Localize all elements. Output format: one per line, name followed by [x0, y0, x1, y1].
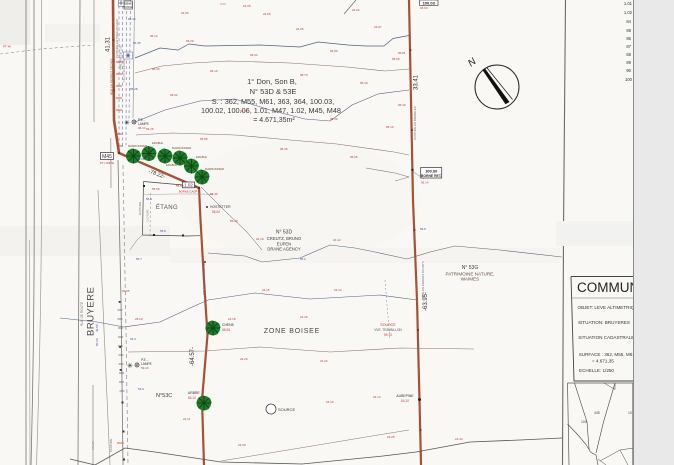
svg-text:58.05: 58.05 — [222, 328, 230, 332]
svg-text:ÉTANG: ÉTANG — [156, 204, 178, 211]
svg-text:24.05: 24.05 — [387, 435, 395, 439]
svg-text:N° 53D & 53E: N° 53D & 53E — [250, 87, 297, 96]
svg-text:AUBEPINE: AUBEPINE — [396, 394, 414, 398]
svg-text:24.43: 24.43 — [455, 437, 463, 441]
svg-text:96.28: 96.28 — [130, 87, 138, 91]
svg-text:24.05: 24.05 — [296, 27, 304, 31]
svg-text:✳: ✳ — [127, 362, 133, 370]
svg-text:ZONE BOISEE: ZONE BOISEE — [264, 328, 320, 335]
svg-text:24.09: 24.09 — [238, 443, 246, 447]
svg-text:96.14: 96.14 — [138, 126, 146, 130]
svg-text:95.60: 95.60 — [392, 57, 400, 61]
svg-text:96.12: 96.12 — [150, 34, 158, 38]
svg-text:96.40: 96.40 — [128, 17, 136, 21]
svg-text:56.00: 56.00 — [212, 210, 220, 214]
svg-text:29.05: 29.05 — [122, 289, 130, 293]
svg-text:96.25: 96.25 — [146, 127, 154, 131]
svg-text:55.7: 55.7 — [136, 257, 142, 261]
svg-text:55.9: 55.9 — [146, 197, 152, 201]
svg-text:PT 46: PT 46 — [3, 45, 11, 49]
svg-text:MARRONNIER: MARRONNIER — [172, 146, 191, 150]
svg-text:24.10: 24.10 — [256, 237, 264, 241]
svg-text:88: 88 — [626, 28, 631, 33]
svg-text:TALUS ENHERBE: TALUS ENHERBE — [122, 59, 126, 82]
svg-text:ERABLE: ERABLE — [166, 163, 177, 167]
svg-text:1° Don, Son B,: 1° Don, Son B, — [247, 77, 297, 86]
svg-text:CLOTURE: CLOTURE — [109, 439, 113, 452]
svg-text:24.06: 24.06 — [263, 12, 271, 16]
svg-text:DRANE AGENCY: DRANE AGENCY — [267, 247, 300, 252]
svg-text:95.05: 95.05 — [350, 155, 358, 159]
svg-text:VIEUX MUR DE CLOTURE: VIEUX MUR DE CLOTURE — [202, 261, 206, 295]
svg-text:438: 438 — [594, 411, 600, 415]
svg-text:VVE. TRAVAILLON: VVE. TRAVAILLON — [374, 328, 402, 332]
svg-text:95.90: 95.90 — [240, 109, 248, 113]
svg-text:24.10: 24.10 — [326, 400, 334, 404]
svg-text:= 4.671,35: = 4.671,35 — [592, 359, 614, 364]
svg-text:24.04: 24.04 — [352, 8, 360, 12]
svg-text:54.10: 54.10 — [401, 399, 409, 403]
svg-text:50.60: 50.60 — [95, 338, 99, 346]
svg-text:24.18: 24.18 — [228, 317, 236, 321]
svg-text:24.11: 24.11 — [183, 417, 191, 421]
svg-text:CREUTZ, BRUNO: CREUTZ, BRUNO — [267, 236, 302, 241]
svg-text:96.02: 96.02 — [170, 93, 178, 97]
svg-text:N° 53G: N° 53G — [462, 265, 479, 271]
svg-text:55.30: 55.30 — [230, 219, 238, 223]
svg-text:24.12: 24.12 — [333, 238, 341, 242]
svg-text:55.8: 55.8 — [160, 229, 166, 233]
svg-text:= 4.671,35m²: = 4.671,35m² — [253, 117, 295, 124]
svg-text:55.50: 55.50 — [176, 184, 184, 188]
svg-text:100: 100 — [625, 77, 633, 82]
svg-text:96.04: 96.04 — [250, 53, 258, 57]
svg-text:95.45: 95.45 — [280, 147, 288, 151]
svg-text:68: 68 — [626, 52, 631, 57]
svg-text:ECHELLE: 1/250: ECHELLE: 1/250 — [579, 368, 614, 373]
svg-text:MARRONNIER: MARRONNIER — [205, 167, 224, 171]
svg-text:89: 89 — [626, 60, 631, 65]
svg-text:1.02: 1.02 — [624, 10, 633, 15]
svg-text:SOURCE: SOURCE — [278, 407, 295, 412]
svg-text:95.70: 95.70 — [300, 73, 308, 77]
svg-text:49.50: 49.50 — [95, 324, 99, 332]
svg-text:24.20: 24.20 — [240, 357, 248, 361]
svg-text:53.4: 53.4 — [130, 337, 136, 341]
svg-text:MARRONNIER: MARRONNIER — [128, 144, 147, 148]
svg-text:M48: M48 — [220, 2, 226, 6]
svg-text:96.00: 96.00 — [137, 157, 145, 161]
svg-text:29.10: 29.10 — [135, 317, 143, 321]
svg-text:CLOTURE EN BARBELES: CLOTURE EN BARBELES — [413, 106, 417, 140]
svg-text:N°53C: N°53C — [156, 393, 172, 399]
svg-text:96.30: 96.30 — [152, 67, 160, 71]
svg-text:BORNE RET.: BORNE RET. — [421, 174, 442, 178]
svg-text:52.9: 52.9 — [138, 387, 144, 391]
svg-text:95.80: 95.80 — [330, 49, 338, 53]
svg-text:SURFACE : 362, M55, M61: SURFACE : 362, M55, M61 — [579, 352, 636, 357]
svg-text:SITUATION CADASTRALE: SITUATION CADASTRALE — [578, 335, 634, 340]
svg-text:95.32: 95.32 — [398, 103, 406, 107]
svg-text:95.60: 95.60 — [420, 6, 428, 10]
svg-text:24.22: 24.22 — [320, 359, 328, 363]
svg-text:24.15: 24.15 — [262, 288, 270, 292]
svg-text:CLOTURE: CLOTURE — [146, 209, 150, 222]
svg-text:✳: ✳ — [124, 119, 130, 127]
svg-text:10: 10 — [628, 411, 632, 415]
svg-text:100.06: 100.06 — [425, 168, 438, 173]
svg-text:BORNE CADP: BORNE CADP — [179, 190, 198, 194]
svg-text:24.13: 24.13 — [373, 395, 381, 399]
svg-text:CLOTURE: CLOTURE — [138, 202, 142, 215]
svg-text:56.8: 56.8 — [420, 227, 426, 231]
svg-text:S. : 362, M55, M61, 363, 364,: S. : 362, M55, M61, 363, 364, 100.03, — [212, 97, 335, 106]
svg-text:24.08: 24.08 — [243, 4, 251, 8]
svg-text:SITUATION: BRUYERES: SITUATION: BRUYERES — [578, 320, 630, 325]
svg-text:33.41: 33.41 — [414, 74, 420, 90]
svg-text:ERABLE: ERABLE — [196, 155, 207, 159]
svg-text:90: 90 — [626, 68, 631, 73]
svg-text:59.10: 59.10 — [384, 333, 392, 337]
svg-text:24.16: 24.16 — [300, 315, 308, 319]
svg-text:100.02, 100.06, 1.01, M47, 1.0: 100.02, 100.06, 1.01, M47, 1.02, M45, M4… — [201, 106, 341, 115]
svg-text:ARBRE: ARBRE — [188, 391, 200, 395]
svg-text:55.40: 55.40 — [210, 192, 218, 196]
svg-text:87: 87 — [626, 44, 631, 49]
svg-text:CHENE: CHENE — [222, 323, 235, 327]
svg-text:24.05: 24.05 — [181, 11, 189, 15]
svg-text:-64.57-: -64.57- — [190, 347, 196, 366]
svg-text:95.14: 95.14 — [421, 181, 429, 185]
svg-text:MUR EN PIERRES DU PAYS: MUR EN PIERRES DU PAYS — [421, 261, 425, 298]
svg-text:55.60: 55.60 — [152, 187, 160, 191]
svg-text:M45: M45 — [102, 154, 112, 160]
svg-text:95.85: 95.85 — [200, 137, 208, 141]
svg-text:100: 100 — [581, 420, 587, 424]
svg-text:54.10: 54.10 — [188, 396, 196, 400]
svg-text:WAIMES: WAIMES — [461, 277, 479, 282]
svg-text:96.35: 96.35 — [133, 41, 141, 45]
svg-text:24.14: 24.14 — [334, 288, 342, 292]
svg-text:SOURCE: SOURCE — [380, 323, 396, 327]
svg-text:59.20: 59.20 — [141, 366, 149, 370]
svg-text:96.20: 96.20 — [186, 39, 194, 43]
svg-text:95.10: 95.10 — [386, 125, 394, 129]
svg-text:1.02: 1.02 — [184, 183, 193, 188]
svg-text:86: 86 — [626, 36, 631, 41]
svg-text:BORNE: BORNE — [124, 5, 133, 9]
svg-text:TALUS: TALUS — [91, 441, 95, 450]
svg-text:1.01: 1.01 — [624, 1, 633, 6]
svg-text:95.81: 95.81 — [398, 51, 406, 55]
svg-text:OBJET: LEVE ALTIMETRIQUE: OBJET: LEVE ALTIMETRIQUE — [578, 305, 641, 310]
svg-text:100.01: 100.01 — [124, 2, 134, 6]
svg-text:84: 84 — [626, 19, 631, 24]
svg-text:PT LIMITE: PT LIMITE — [100, 161, 114, 165]
svg-text:95.40: 95.40 — [360, 81, 368, 85]
svg-text:41.31: 41.31 — [106, 36, 112, 52]
svg-text:95.30: 95.30 — [330, 117, 338, 121]
svg-text:24.07: 24.07 — [374, 25, 382, 29]
svg-text:RUE DE ROUTE: RUE DE ROUTE — [80, 302, 84, 326]
svg-text:96.10: 96.10 — [210, 69, 218, 73]
svg-text:56.2: 56.2 — [300, 257, 306, 261]
svg-text:100.03: 100.03 — [423, 1, 436, 6]
svg-text:N° 53D: N° 53D — [276, 230, 293, 236]
svg-text:ERABLE: ERABLE — [152, 141, 163, 145]
svg-text:HOSTETTER: HOSTETTER — [210, 205, 231, 209]
